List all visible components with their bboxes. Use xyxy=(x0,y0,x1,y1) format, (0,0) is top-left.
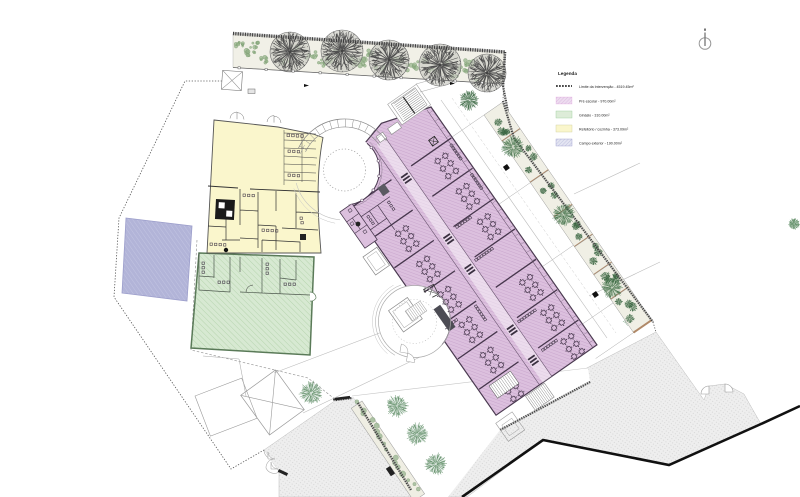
svg-text:Ginásio - 310.00m²: Ginásio - 310.00m² xyxy=(579,113,610,117)
svg-text:Limite da Intervenção - 4519.4: Limite da Intervenção - 4519.45m² xyxy=(579,85,635,89)
svg-text:Legenda: Legenda xyxy=(558,71,577,76)
svg-text:Refeitório / cozinha - 373.09m: Refeitório / cozinha - 373.09m² xyxy=(579,127,629,131)
svg-text:Campo exterior - 190.00m²: Campo exterior - 190.00m² xyxy=(579,141,623,145)
svg-text:Pré escolar - 970.00m²: Pré escolar - 970.00m² xyxy=(579,99,616,103)
